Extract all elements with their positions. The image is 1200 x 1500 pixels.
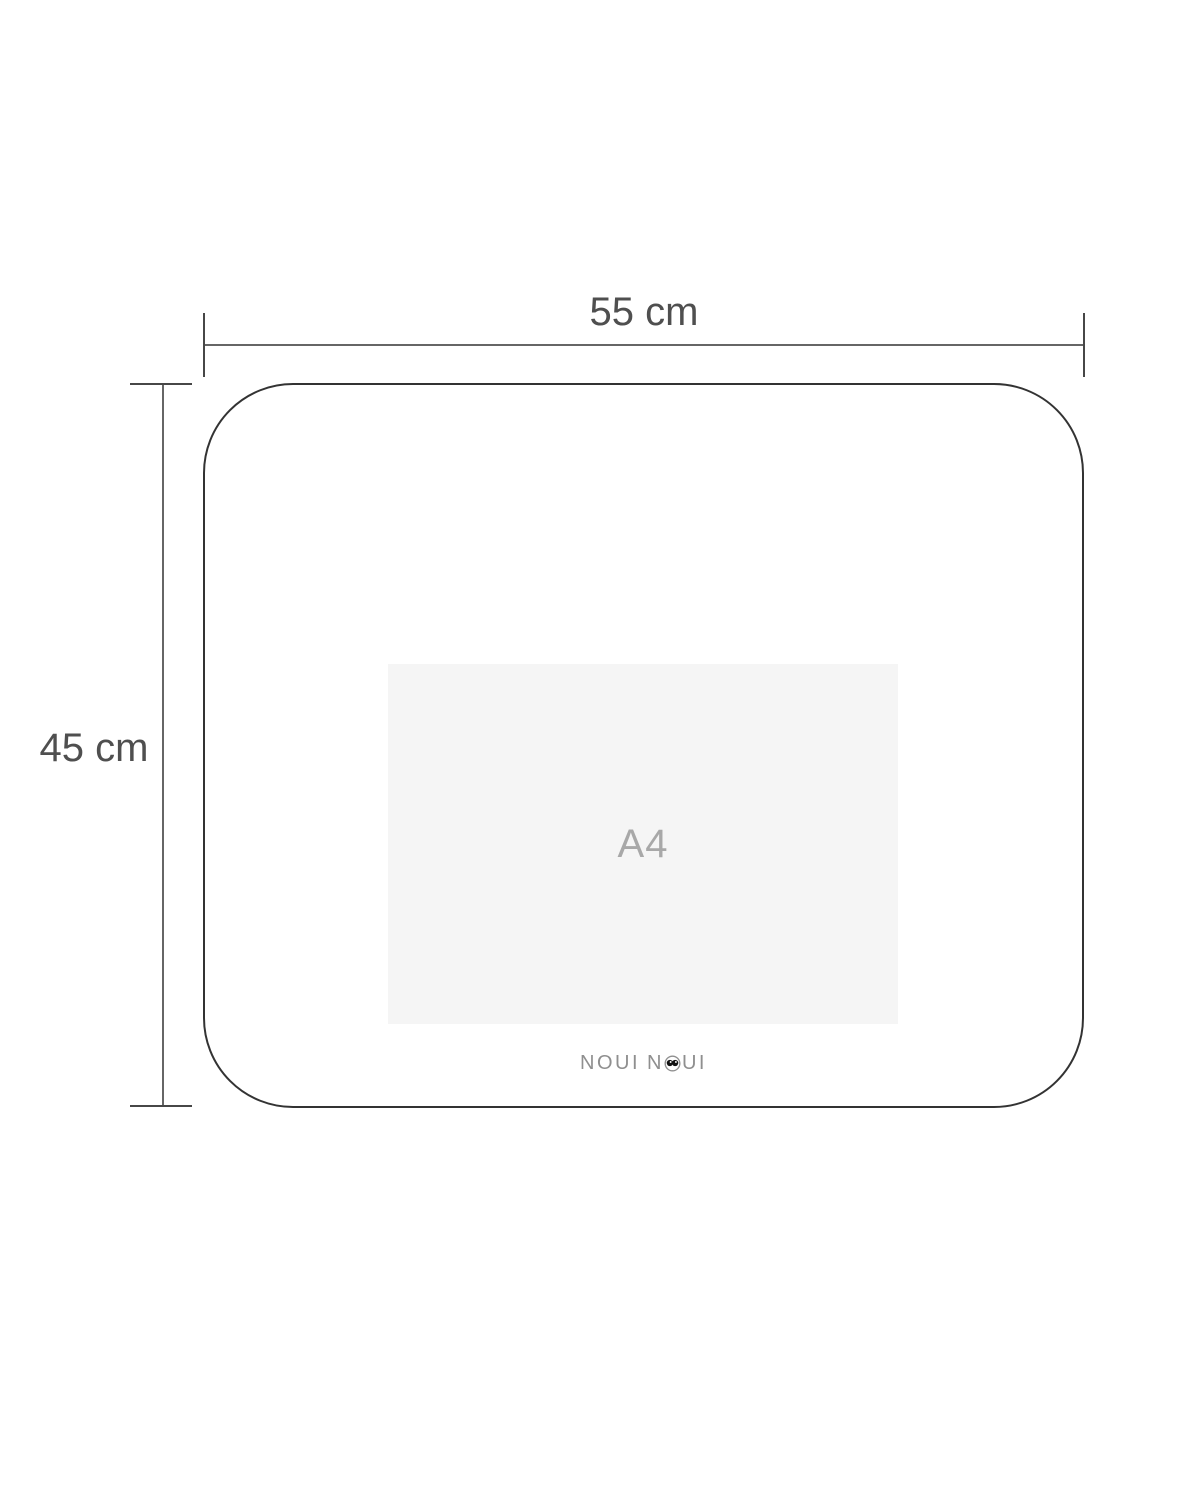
brand-word-2-prefix: N [647, 1052, 664, 1075]
brand-word-2-suffix: UI [682, 1052, 707, 1075]
height-dimension-tick-bottom [130, 1105, 192, 1107]
height-dimension-label: 45 cm [28, 724, 160, 772]
brand-logo: NOUI N UI [203, 1049, 1084, 1077]
brand-word-2: N UI [647, 1052, 707, 1075]
a4-label: A4 [618, 822, 669, 867]
width-dimension-tick-left [203, 313, 205, 377]
brand-word-1: NOUI [580, 1052, 640, 1075]
dimension-diagram: 55 cm 45 cm A4 NOUI N UI [0, 0, 1200, 1500]
width-dimension-line [204, 344, 1084, 346]
width-dimension-tick-right [1083, 313, 1085, 377]
height-dimension-line [162, 385, 164, 1106]
height-dimension-tick-top [130, 383, 192, 385]
eyes-in-o-icon [664, 1055, 681, 1072]
a4-size-reference: A4 [388, 664, 898, 1024]
width-dimension-label: 55 cm [204, 288, 1084, 336]
